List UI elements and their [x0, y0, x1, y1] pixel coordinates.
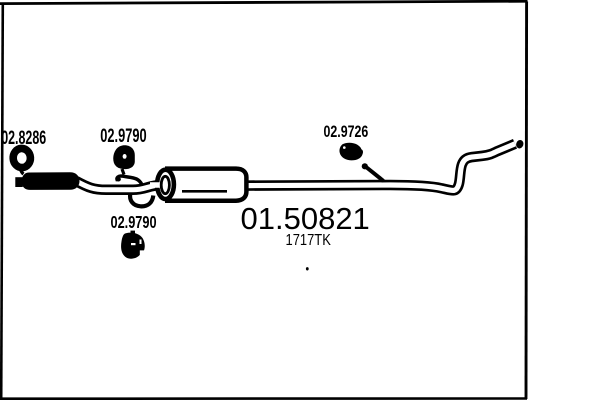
svg-text:02.8286: 02.8286 — [1, 127, 46, 148]
svg-text:02.9726: 02.9726 — [324, 123, 369, 141]
svg-text:02.9790: 02.9790 — [111, 213, 157, 233]
svg-text:02.9790: 02.9790 — [100, 126, 146, 147]
svg-text:1717TK: 1717TK — [286, 232, 332, 249]
